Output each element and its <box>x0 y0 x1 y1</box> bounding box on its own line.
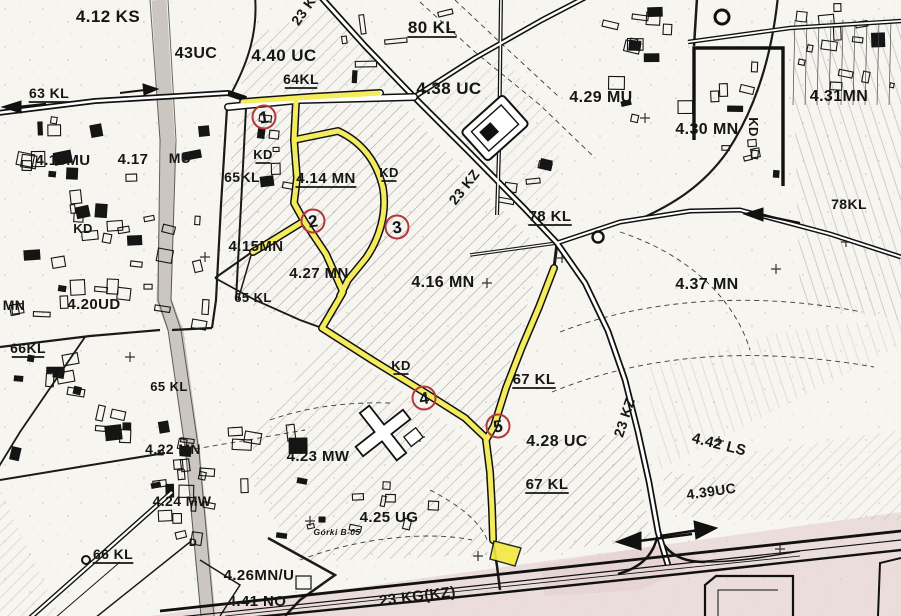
building-footprint <box>73 386 81 394</box>
building-footprint <box>95 204 107 218</box>
map-label: KD <box>253 147 273 162</box>
map-label: 4.24 MW <box>153 493 212 509</box>
map-label: 64KL <box>283 71 319 87</box>
map-label: 65 KL <box>234 290 271 305</box>
building-footprint <box>14 376 23 382</box>
map-label: 65KL <box>224 169 260 185</box>
building-footprint <box>352 71 357 83</box>
map-label: 4.22 MN <box>145 441 201 457</box>
map-label: 67 KL <box>513 371 556 388</box>
map-label: 4.18MU <box>36 152 91 169</box>
map-label: MU <box>169 150 192 166</box>
map-label: 43UC <box>175 45 218 62</box>
map-label: MN <box>3 297 26 313</box>
building-footprint <box>49 171 56 176</box>
map-label: 4.17 <box>118 151 149 168</box>
map-label: 66 KL <box>93 546 133 562</box>
map-label: 78 KL <box>529 208 572 225</box>
building-footprint <box>297 478 307 484</box>
map-label: D <box>189 537 197 549</box>
building-footprint <box>123 423 131 429</box>
map-label: 4.12 KS <box>76 7 140 26</box>
map-label: 67 KL <box>526 476 569 493</box>
building-footprint <box>257 128 265 138</box>
map-label: 4.38 UC <box>416 79 481 98</box>
building-footprint <box>629 40 641 50</box>
map-label: 4.16 MN <box>411 274 474 291</box>
building-footprint <box>199 126 210 137</box>
map-label: 4.15MN <box>229 238 284 255</box>
map-label: 66KL <box>10 340 46 356</box>
map-label: KD <box>746 117 761 137</box>
map-label: KD <box>379 165 399 180</box>
zoning-map: 4.12 KS43UC4.40 UC80 KL4.38 UC4.29 MU4.3… <box>0 0 901 616</box>
map-canvas: 4.12 KS43UC4.40 UC80 KL4.38 UC4.29 MU4.3… <box>0 0 901 616</box>
building-footprint <box>276 533 286 539</box>
map-label: 4.23 MW <box>287 448 350 465</box>
building-footprint <box>58 285 66 291</box>
map-label: 4.29 MU <box>569 89 632 106</box>
building-footprint <box>158 421 169 433</box>
building-footprint <box>66 168 77 179</box>
map-label: 80 KL <box>408 18 456 37</box>
building-footprint <box>319 517 325 522</box>
map-label: 63 KL <box>29 85 69 101</box>
map-label: 4.31MN <box>810 88 868 105</box>
building-footprint <box>728 106 743 111</box>
map-label: 4.41 NO <box>228 593 287 610</box>
map-label: 78KL <box>831 196 867 212</box>
map-label: KD <box>391 358 411 373</box>
map-label: 4.14 MN <box>296 170 356 187</box>
building-footprint <box>90 124 103 137</box>
building-footprint <box>644 54 659 62</box>
map-label: 4.25 UG <box>360 509 419 526</box>
building-footprint <box>38 122 43 135</box>
map-label: 4.27 MN <box>289 265 349 282</box>
map-label: 4.37 MN <box>675 276 738 293</box>
building-footprint <box>127 236 141 246</box>
map-label: 65 KL <box>150 379 187 394</box>
building-footprint <box>76 205 90 218</box>
map-label: Górki B-05 <box>314 527 361 537</box>
map-label: 4.28 UC <box>526 433 588 450</box>
map-label: KD <box>73 221 93 236</box>
map-label: 4.20UD <box>67 296 120 313</box>
building-footprint <box>28 355 35 362</box>
building-footprint <box>260 176 274 187</box>
map-label: 4.30 MN <box>675 121 738 138</box>
map-label: 4.26MN/U <box>224 567 295 584</box>
building-footprint <box>773 170 779 177</box>
map-label: 4.40 UC <box>251 46 316 65</box>
building-footprint <box>24 250 40 260</box>
